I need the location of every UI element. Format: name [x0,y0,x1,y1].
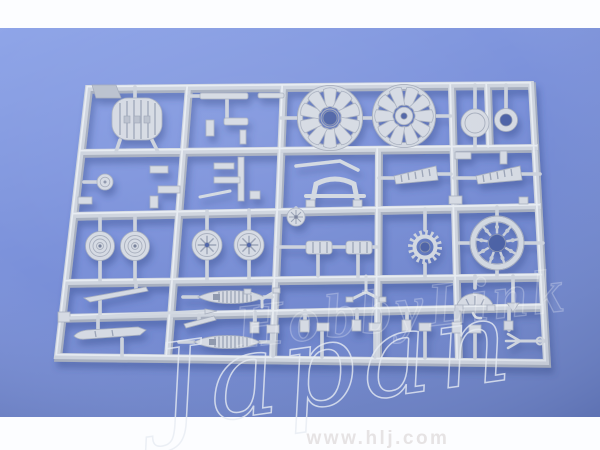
watermark-url-text: www.hlj.com [306,428,450,449]
product-photo: HobbyLink Japan www.hlj.com [0,0,600,450]
